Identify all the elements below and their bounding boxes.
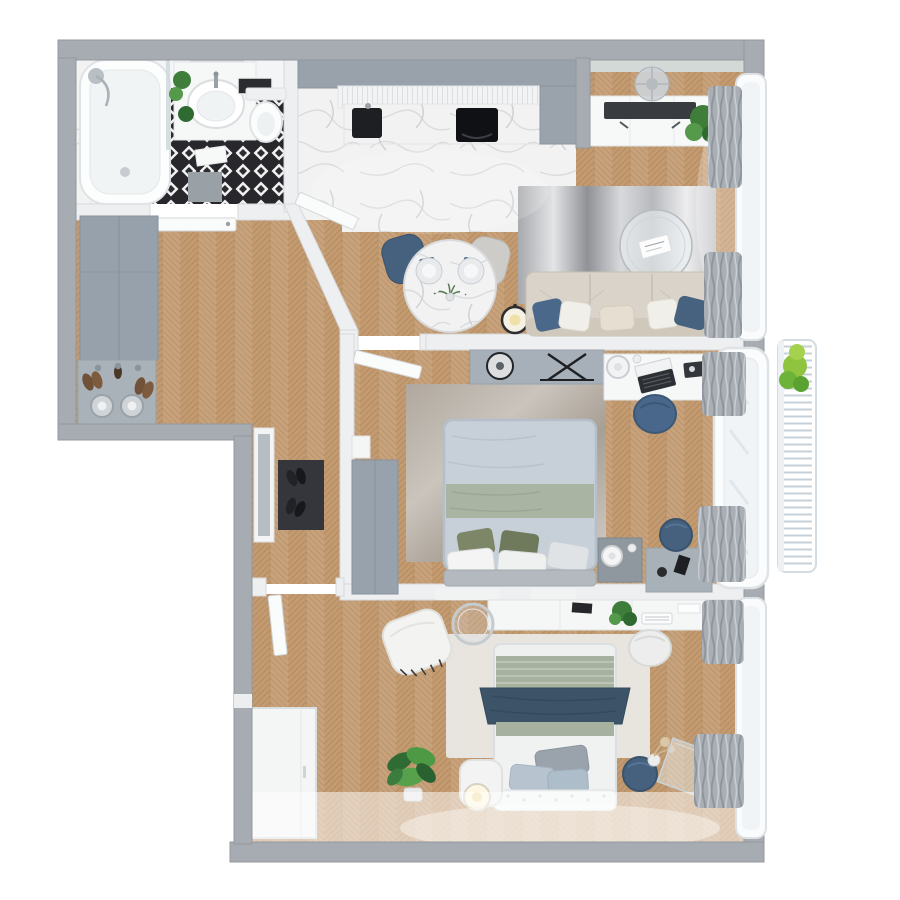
glass-coffee-table	[620, 210, 692, 282]
toilet-seat	[257, 112, 275, 136]
desk-chair-navy	[634, 395, 676, 433]
side-table-decor	[657, 567, 667, 577]
headboard	[444, 570, 596, 586]
drape-second-top	[702, 600, 744, 664]
navy-pouf	[660, 519, 692, 551]
pillow-white-right	[646, 298, 680, 330]
white-wardrobe-handle	[303, 766, 306, 778]
white-box-decor	[352, 436, 370, 458]
bathroom-door-open	[150, 218, 236, 231]
wall-west-upper	[58, 58, 76, 428]
keyboard	[642, 613, 672, 624]
mouse	[689, 366, 695, 372]
nightstand-cup	[628, 544, 636, 552]
tv	[604, 102, 696, 119]
sage-striped-duvet-top	[496, 656, 614, 690]
sage-runner	[446, 484, 594, 518]
white-towel	[195, 146, 227, 166]
bedroom-doorway-jamb-right	[420, 334, 426, 350]
sink-faucet	[214, 76, 218, 88]
bedside-mat-left	[434, 588, 500, 600]
leaning-mirror-glass	[258, 434, 270, 536]
kitchen-living-stub-wall	[576, 58, 590, 148]
wall-north	[58, 40, 764, 60]
pillow-fringe-center	[599, 305, 635, 331]
bathroom-door-handle	[226, 222, 230, 226]
pillow-white-left	[558, 300, 592, 332]
toilet-tank	[246, 88, 286, 100]
round-leaning-mirror	[453, 604, 493, 644]
drape-bedroom-bottom	[698, 506, 746, 582]
drape-living-top	[708, 86, 742, 188]
corridor-door-jamb	[336, 578, 344, 596]
bathroom-east-wall	[284, 58, 298, 212]
wall-console-desk	[488, 600, 706, 630]
drape-bedroom-top	[702, 352, 746, 416]
navy-throw	[480, 688, 630, 724]
induction-cooktop	[456, 108, 498, 142]
sofa	[526, 272, 716, 336]
black-sink	[352, 108, 382, 138]
desk-mug	[633, 355, 641, 363]
ceiling-light	[635, 67, 669, 101]
drape-second-bottom	[694, 734, 744, 808]
tv-wall-paint	[590, 60, 744, 72]
drape-living-bottom	[704, 252, 742, 338]
round-dining-table	[404, 240, 496, 332]
bed-double	[444, 420, 596, 586]
wall-west-step	[58, 424, 252, 440]
balcony	[778, 340, 816, 572]
sink-bowl	[197, 91, 235, 121]
floor-plan-stage	[0, 0, 900, 900]
bathtub-drain	[120, 167, 130, 177]
wall-west-lower	[234, 436, 252, 844]
desk-lamp-shade	[614, 363, 622, 371]
bedside-mat-right	[530, 588, 576, 600]
upper-cabinets	[298, 56, 576, 88]
black-book	[572, 602, 593, 613]
console-round-decor-center	[496, 362, 504, 370]
kitchen-light	[312, 150, 548, 234]
shower-glass-panel	[166, 58, 170, 150]
nightstand-with-lamp	[598, 538, 642, 582]
wall-south	[230, 842, 764, 862]
kitchen-faucet	[365, 103, 371, 109]
sage-band-lower	[496, 722, 614, 738]
floor-plan-canvas	[0, 0, 900, 900]
tall-cabinet	[540, 86, 576, 144]
wall-west-notch	[234, 694, 252, 708]
white-desk-chair	[629, 630, 671, 666]
gray-bath-mat	[188, 172, 222, 202]
sink-faucet-head	[214, 72, 219, 77]
white-tray	[678, 604, 700, 613]
